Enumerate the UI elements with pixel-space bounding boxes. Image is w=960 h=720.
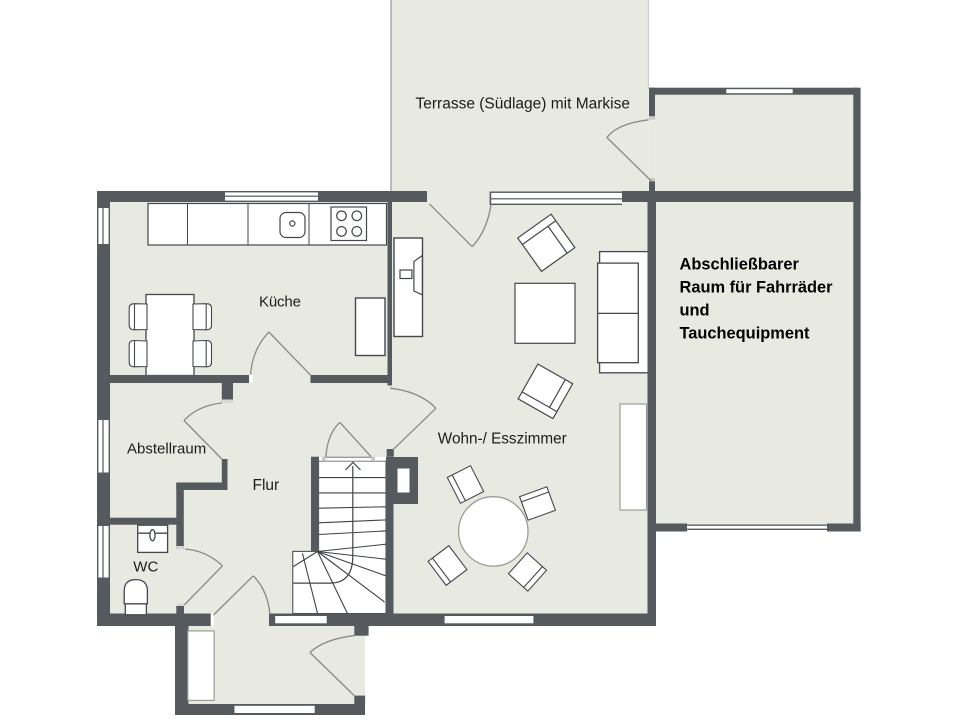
svg-text:Küche: Küche [259,294,301,311]
svg-text:WC: WC [133,559,158,576]
svg-text:Flur: Flur [253,477,280,494]
svg-text:und: und [680,302,710,320]
svg-text:Tauchequipment: Tauchequipment [680,325,810,343]
svg-text:Abstellraum: Abstellraum [127,441,206,458]
svg-text:Terrasse (Südlage) mit Markise: Terrasse (Südlage) mit Markise [416,95,630,112]
svg-text:Wohn-/ Esszimmer: Wohn-/ Esszimmer [438,430,567,447]
svg-text:Raum für Fahrräder: Raum für Fahrräder [680,279,834,297]
svg-text:Abschließbarer: Abschließbarer [680,256,800,274]
